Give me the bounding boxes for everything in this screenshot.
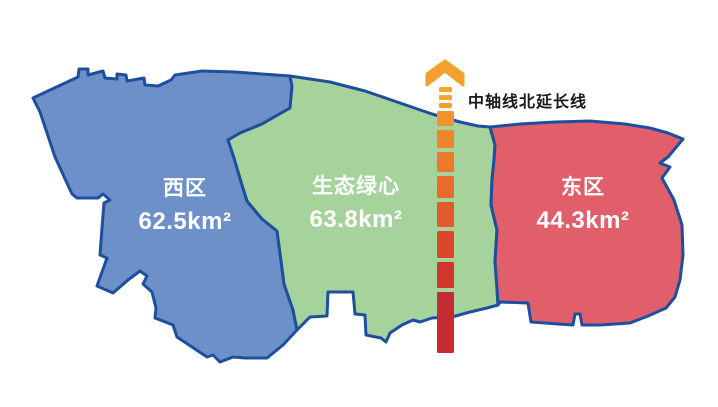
district-shapes <box>33 69 683 362</box>
district-map <box>0 0 718 407</box>
axis-dash-segment <box>437 262 454 288</box>
axis-dash-segment <box>437 111 454 126</box>
axis-dash-segment <box>437 176 454 198</box>
axis-dash-segment <box>437 130 454 148</box>
axis-label: 中轴线北延长线 <box>468 88 587 112</box>
east-district-shape <box>490 121 683 325</box>
axis-dash-segment <box>437 202 454 227</box>
axis-dash-segment <box>437 152 454 172</box>
axis-dash-segment <box>437 292 454 353</box>
axis-dash-segment <box>437 231 454 258</box>
axis-dash-segment <box>439 95 452 100</box>
axis-dash-segment <box>439 103 452 108</box>
axis-arrow-up-icon <box>424 57 466 88</box>
map-infographic: 中轴线北延长线 西区 62.5km² 生态绿心 63.8km² 东区 44.3k… <box>0 0 718 407</box>
